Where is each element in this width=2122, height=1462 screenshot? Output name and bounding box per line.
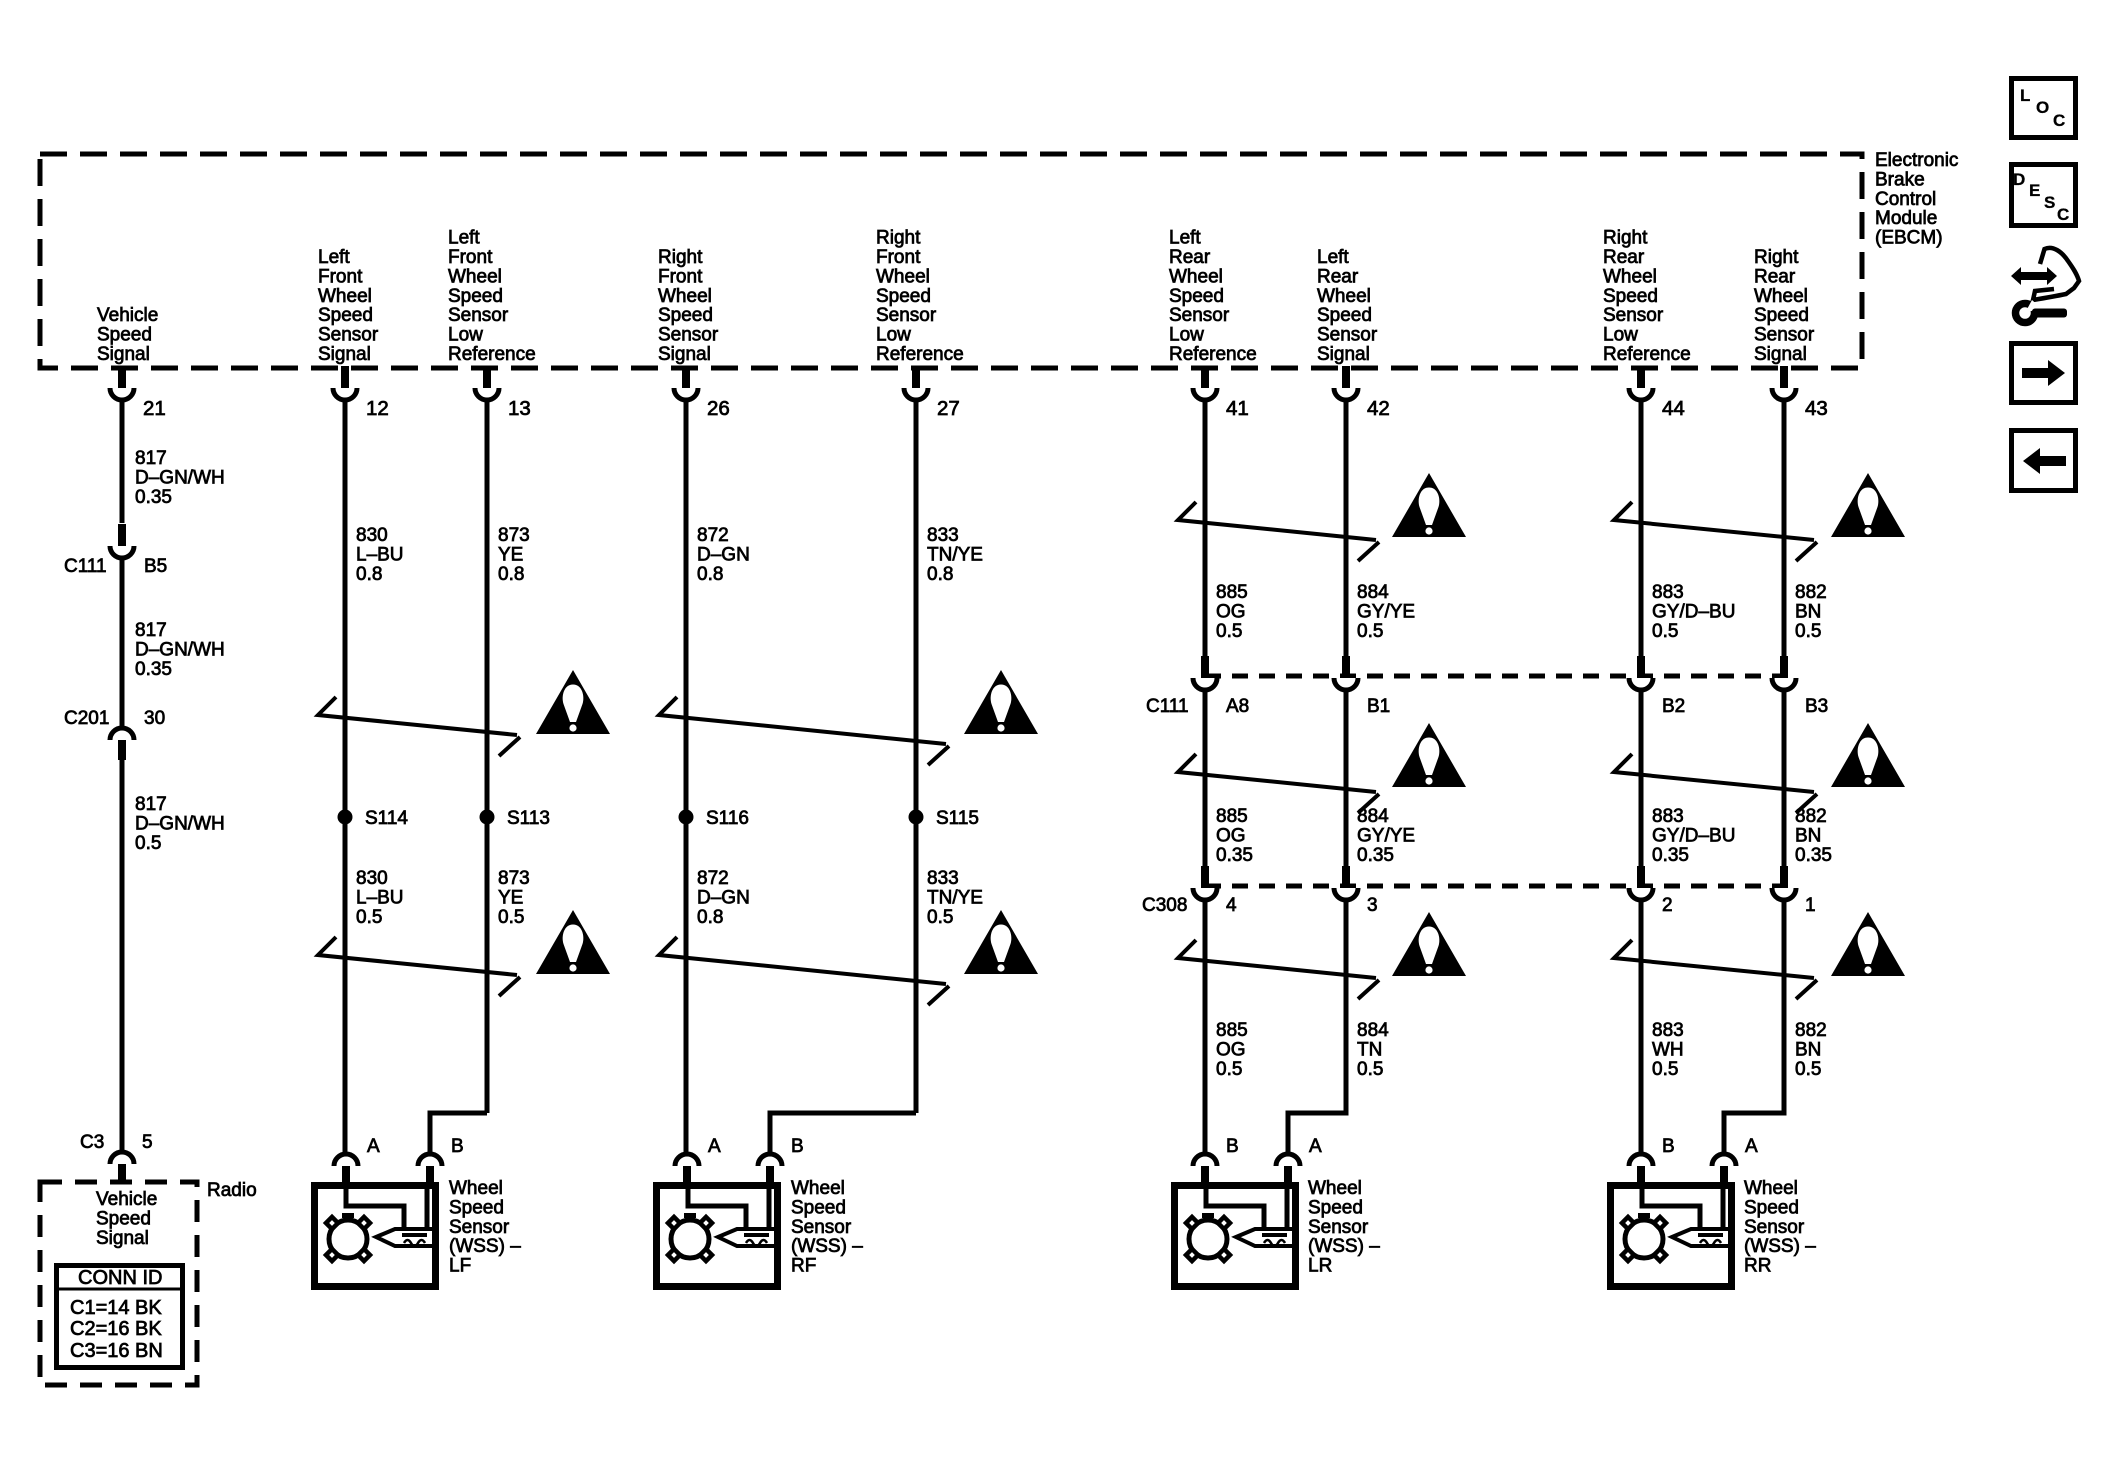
svg-text:885: 885 bbox=[1216, 806, 1248, 827]
svg-text:Speed: Speed bbox=[876, 286, 931, 307]
svg-text:Wheel: Wheel bbox=[1169, 266, 1223, 287]
svg-text:Right: Right bbox=[876, 228, 921, 249]
svg-text:BN: BN bbox=[1795, 825, 1821, 846]
svg-text:B2: B2 bbox=[1662, 696, 1685, 717]
svg-text:42: 42 bbox=[1367, 397, 1390, 420]
svg-text:Left: Left bbox=[1169, 228, 1201, 249]
svg-text:Wheel: Wheel bbox=[791, 1178, 845, 1199]
svg-text:B5: B5 bbox=[144, 556, 167, 577]
svg-text:C2=16 BK: C2=16 BK bbox=[70, 1318, 162, 1340]
svg-text:Low: Low bbox=[1603, 325, 1638, 346]
svg-text:Speed: Speed bbox=[97, 325, 152, 346]
svg-text:817: 817 bbox=[135, 448, 167, 469]
svg-text:A: A bbox=[708, 1136, 721, 1157]
svg-text:C308: C308 bbox=[1142, 895, 1187, 916]
svg-text:873: 873 bbox=[498, 525, 530, 546]
svg-text:LF: LF bbox=[449, 1256, 471, 1277]
svg-text:Signal: Signal bbox=[96, 1228, 149, 1249]
svg-text:Wheel: Wheel bbox=[318, 286, 372, 307]
svg-text:Module: Module bbox=[1875, 208, 1937, 229]
svg-text:Sensor: Sensor bbox=[791, 1217, 852, 1238]
svg-text:C1=14 BK: C1=14 BK bbox=[70, 1297, 162, 1319]
svg-text:Control: Control bbox=[1875, 189, 1936, 210]
svg-text:0.5: 0.5 bbox=[927, 907, 953, 928]
svg-text:Signal: Signal bbox=[97, 344, 150, 365]
svg-text:Wheel: Wheel bbox=[1317, 286, 1371, 307]
svg-text:817: 817 bbox=[135, 794, 167, 815]
svg-text:0.5: 0.5 bbox=[1216, 1059, 1242, 1080]
svg-text:Right: Right bbox=[1603, 228, 1648, 249]
svg-text:817: 817 bbox=[135, 620, 167, 641]
svg-text:884: 884 bbox=[1357, 806, 1389, 827]
svg-text:Rear: Rear bbox=[1754, 266, 1796, 287]
svg-text:S115: S115 bbox=[936, 808, 979, 829]
svg-text:Speed: Speed bbox=[449, 1197, 504, 1218]
svg-text:OG: OG bbox=[1216, 1039, 1246, 1060]
svg-text:B: B bbox=[451, 1136, 464, 1157]
svg-text:Front: Front bbox=[658, 266, 703, 287]
svg-text:0.5: 0.5 bbox=[1357, 621, 1383, 642]
svg-text:884: 884 bbox=[1357, 1020, 1389, 1041]
svg-text:Signal: Signal bbox=[318, 344, 371, 365]
svg-text:Sensor: Sensor bbox=[658, 325, 719, 346]
svg-text:Sensor: Sensor bbox=[448, 305, 509, 326]
svg-text:B1: B1 bbox=[1367, 696, 1390, 717]
svg-text:B: B bbox=[791, 1136, 804, 1157]
svg-text:872: 872 bbox=[697, 525, 729, 546]
svg-text:885: 885 bbox=[1216, 1020, 1248, 1041]
svg-text:A8: A8 bbox=[1226, 696, 1249, 717]
svg-text:830: 830 bbox=[356, 525, 388, 546]
svg-text:A: A bbox=[367, 1136, 380, 1157]
svg-text:Vehicle: Vehicle bbox=[97, 305, 158, 326]
svg-text:L: L bbox=[2020, 86, 2030, 105]
svg-text:12: 12 bbox=[366, 397, 389, 420]
svg-text:Wheel: Wheel bbox=[448, 266, 502, 287]
svg-text:Signal: Signal bbox=[1754, 344, 1807, 365]
svg-text:883: 883 bbox=[1652, 1020, 1684, 1041]
svg-text:C3=16 BN: C3=16 BN bbox=[70, 1340, 163, 1362]
svg-text:0.5: 0.5 bbox=[1795, 1059, 1821, 1080]
svg-text:4: 4 bbox=[1226, 895, 1237, 916]
svg-text:0.5: 0.5 bbox=[1216, 621, 1242, 642]
svg-text:(WSS) –: (WSS) – bbox=[791, 1236, 863, 1257]
svg-text:13: 13 bbox=[508, 397, 531, 420]
svg-text:Rear: Rear bbox=[1169, 247, 1211, 268]
svg-text:WH: WH bbox=[1652, 1039, 1684, 1060]
svg-text:Vehicle: Vehicle bbox=[96, 1189, 157, 1210]
svg-text:GY/YE: GY/YE bbox=[1357, 601, 1415, 622]
svg-text:Left: Left bbox=[1317, 247, 1349, 268]
svg-text:B3: B3 bbox=[1805, 696, 1828, 717]
svg-text:Sensor: Sensor bbox=[449, 1217, 510, 1238]
svg-text:0.8: 0.8 bbox=[697, 564, 723, 585]
svg-text:0.35: 0.35 bbox=[1652, 845, 1689, 866]
svg-text:41: 41 bbox=[1226, 397, 1249, 420]
svg-text:27: 27 bbox=[937, 397, 960, 420]
svg-text:C: C bbox=[2057, 205, 2069, 224]
svg-text:Sensor: Sensor bbox=[1308, 1217, 1369, 1238]
svg-text:0.35: 0.35 bbox=[1357, 845, 1394, 866]
svg-text:Speed: Speed bbox=[1308, 1197, 1363, 1218]
svg-text:882: 882 bbox=[1795, 806, 1827, 827]
svg-text:Sensor: Sensor bbox=[1754, 325, 1815, 346]
svg-text:Speed: Speed bbox=[658, 305, 713, 326]
svg-text:Rear: Rear bbox=[1317, 266, 1359, 287]
svg-text:0.8: 0.8 bbox=[356, 564, 382, 585]
svg-text:Low: Low bbox=[448, 325, 483, 346]
svg-text:TN/YE: TN/YE bbox=[927, 544, 983, 565]
svg-text:Wheel: Wheel bbox=[1744, 1178, 1798, 1199]
svg-text:1: 1 bbox=[1805, 895, 1816, 916]
svg-text:21: 21 bbox=[143, 397, 166, 420]
svg-text:Front: Front bbox=[318, 266, 363, 287]
svg-text:Rear: Rear bbox=[1603, 247, 1645, 268]
svg-text:Front: Front bbox=[876, 247, 921, 268]
svg-text:44: 44 bbox=[1662, 397, 1685, 420]
svg-text:Electronic: Electronic bbox=[1875, 150, 1958, 171]
svg-text:TN: TN bbox=[1357, 1039, 1382, 1060]
svg-text:S: S bbox=[2044, 193, 2055, 212]
svg-text:Signal: Signal bbox=[1317, 344, 1370, 365]
svg-text:0.35: 0.35 bbox=[1216, 845, 1253, 866]
svg-text:883: 883 bbox=[1652, 806, 1684, 827]
svg-text:883: 883 bbox=[1652, 582, 1684, 603]
svg-text:0.8: 0.8 bbox=[927, 564, 953, 585]
svg-text:GY/YE: GY/YE bbox=[1357, 825, 1415, 846]
svg-text:S116: S116 bbox=[706, 808, 749, 829]
svg-text:(WSS) –: (WSS) – bbox=[1744, 1236, 1816, 1257]
svg-text:D–GN: D–GN bbox=[697, 887, 750, 908]
svg-text:0.5: 0.5 bbox=[1357, 1059, 1383, 1080]
svg-text:26: 26 bbox=[707, 397, 730, 420]
svg-text:OG: OG bbox=[1216, 825, 1246, 846]
svg-text:E: E bbox=[2029, 181, 2040, 200]
svg-text:Reference: Reference bbox=[1603, 344, 1691, 365]
svg-text:Speed: Speed bbox=[791, 1197, 846, 1218]
svg-text:YE: YE bbox=[498, 544, 523, 565]
svg-text:S113: S113 bbox=[507, 808, 550, 829]
svg-text:TN/YE: TN/YE bbox=[927, 887, 983, 908]
svg-text:Left: Left bbox=[448, 228, 480, 249]
svg-text:Wheel: Wheel bbox=[1308, 1178, 1362, 1199]
svg-text:C111: C111 bbox=[1146, 696, 1189, 717]
svg-text:5: 5 bbox=[142, 1132, 153, 1153]
svg-text:Reference: Reference bbox=[448, 344, 536, 365]
svg-text:Wheel: Wheel bbox=[1603, 266, 1657, 287]
svg-text:Brake: Brake bbox=[1875, 169, 1925, 190]
svg-text:884: 884 bbox=[1357, 582, 1389, 603]
svg-text:RF: RF bbox=[791, 1256, 816, 1277]
svg-text:0.5: 0.5 bbox=[498, 907, 524, 928]
svg-text:Speed: Speed bbox=[448, 286, 503, 307]
svg-text:C3: C3 bbox=[80, 1132, 104, 1153]
svg-text:Sensor: Sensor bbox=[1317, 325, 1378, 346]
svg-text:0.35: 0.35 bbox=[1795, 845, 1832, 866]
svg-text:D–GN: D–GN bbox=[697, 544, 750, 565]
svg-text:D–GN/WH: D–GN/WH bbox=[135, 639, 225, 660]
svg-text:Low: Low bbox=[1169, 325, 1204, 346]
svg-text:0.5: 0.5 bbox=[1795, 621, 1821, 642]
svg-text:Sensor: Sensor bbox=[1744, 1217, 1805, 1238]
svg-text:Radio: Radio bbox=[207, 1180, 257, 1201]
svg-text:OG: OG bbox=[1216, 601, 1246, 622]
svg-text:Reference: Reference bbox=[1169, 344, 1257, 365]
svg-text:CONN ID: CONN ID bbox=[78, 1267, 162, 1289]
svg-text:Wheel: Wheel bbox=[658, 286, 712, 307]
svg-text:Left: Left bbox=[318, 247, 350, 268]
svg-text:0.8: 0.8 bbox=[498, 564, 524, 585]
svg-text:Low: Low bbox=[876, 325, 911, 346]
svg-text:Front: Front bbox=[448, 247, 493, 268]
svg-text:Sensor: Sensor bbox=[318, 325, 379, 346]
svg-text:0.5: 0.5 bbox=[1652, 621, 1678, 642]
svg-text:YE: YE bbox=[498, 887, 523, 908]
svg-text:LR: LR bbox=[1308, 1256, 1332, 1277]
svg-text:A: A bbox=[1309, 1136, 1322, 1157]
svg-text:(EBCM): (EBCM) bbox=[1875, 228, 1943, 249]
svg-text:Right: Right bbox=[658, 247, 703, 268]
svg-text:0.35: 0.35 bbox=[135, 487, 172, 508]
svg-text:GY/D–BU: GY/D–BU bbox=[1652, 825, 1735, 846]
svg-text:Sensor: Sensor bbox=[876, 305, 937, 326]
svg-text:830: 830 bbox=[356, 868, 388, 889]
svg-text:0.8: 0.8 bbox=[697, 907, 723, 928]
svg-text:(WSS) –: (WSS) – bbox=[449, 1236, 521, 1257]
svg-text:Reference: Reference bbox=[876, 344, 964, 365]
svg-text:Speed: Speed bbox=[1754, 305, 1809, 326]
svg-text:B: B bbox=[1226, 1136, 1239, 1157]
svg-text:D: D bbox=[2013, 170, 2025, 189]
svg-text:873: 873 bbox=[498, 868, 530, 889]
svg-text:Speed: Speed bbox=[1169, 286, 1224, 307]
svg-text:882: 882 bbox=[1795, 1020, 1827, 1041]
svg-text:Speed: Speed bbox=[96, 1208, 151, 1229]
svg-text:L–BU: L–BU bbox=[356, 544, 404, 565]
svg-text:Speed: Speed bbox=[318, 305, 373, 326]
svg-text:2: 2 bbox=[1662, 895, 1673, 916]
svg-text:833: 833 bbox=[927, 525, 959, 546]
svg-text:Wheel: Wheel bbox=[1754, 286, 1808, 307]
svg-text:S114: S114 bbox=[365, 808, 408, 829]
svg-text:0.35: 0.35 bbox=[135, 659, 172, 680]
svg-text:Speed: Speed bbox=[1603, 286, 1658, 307]
svg-text:0.5: 0.5 bbox=[1652, 1059, 1678, 1080]
svg-text:RR: RR bbox=[1744, 1256, 1771, 1277]
svg-text:3: 3 bbox=[1367, 895, 1378, 916]
svg-text:GY/D–BU: GY/D–BU bbox=[1652, 601, 1735, 622]
svg-text:Right: Right bbox=[1754, 247, 1799, 268]
svg-text:Signal: Signal bbox=[658, 344, 711, 365]
svg-text:833: 833 bbox=[927, 868, 959, 889]
svg-text:872: 872 bbox=[697, 868, 729, 889]
svg-text:Sensor: Sensor bbox=[1603, 305, 1664, 326]
svg-text:C111: C111 bbox=[64, 556, 107, 577]
svg-text:D–GN/WH: D–GN/WH bbox=[135, 813, 225, 834]
svg-text:885: 885 bbox=[1216, 582, 1248, 603]
svg-text:Speed: Speed bbox=[1744, 1197, 1799, 1218]
svg-text:D–GN/WH: D–GN/WH bbox=[135, 467, 225, 488]
svg-text:BN: BN bbox=[1795, 1039, 1821, 1060]
svg-text:L–BU: L–BU bbox=[356, 887, 404, 908]
svg-text:O: O bbox=[2036, 98, 2049, 117]
svg-text:Wheel: Wheel bbox=[876, 266, 930, 287]
svg-text:BN: BN bbox=[1795, 601, 1821, 622]
svg-text:30: 30 bbox=[144, 708, 165, 729]
svg-text:A: A bbox=[1745, 1136, 1758, 1157]
svg-text:C: C bbox=[2053, 111, 2065, 130]
svg-text:Wheel: Wheel bbox=[449, 1178, 503, 1199]
svg-text:Speed: Speed bbox=[1317, 305, 1372, 326]
svg-text:Sensor: Sensor bbox=[1169, 305, 1230, 326]
svg-text:882: 882 bbox=[1795, 582, 1827, 603]
svg-text:43: 43 bbox=[1805, 397, 1828, 420]
svg-text:(WSS) –: (WSS) – bbox=[1308, 1236, 1380, 1257]
svg-text:0.5: 0.5 bbox=[356, 907, 382, 928]
svg-text:C201: C201 bbox=[64, 708, 109, 729]
svg-text:0.5: 0.5 bbox=[135, 833, 161, 854]
svg-text:B: B bbox=[1662, 1136, 1675, 1157]
